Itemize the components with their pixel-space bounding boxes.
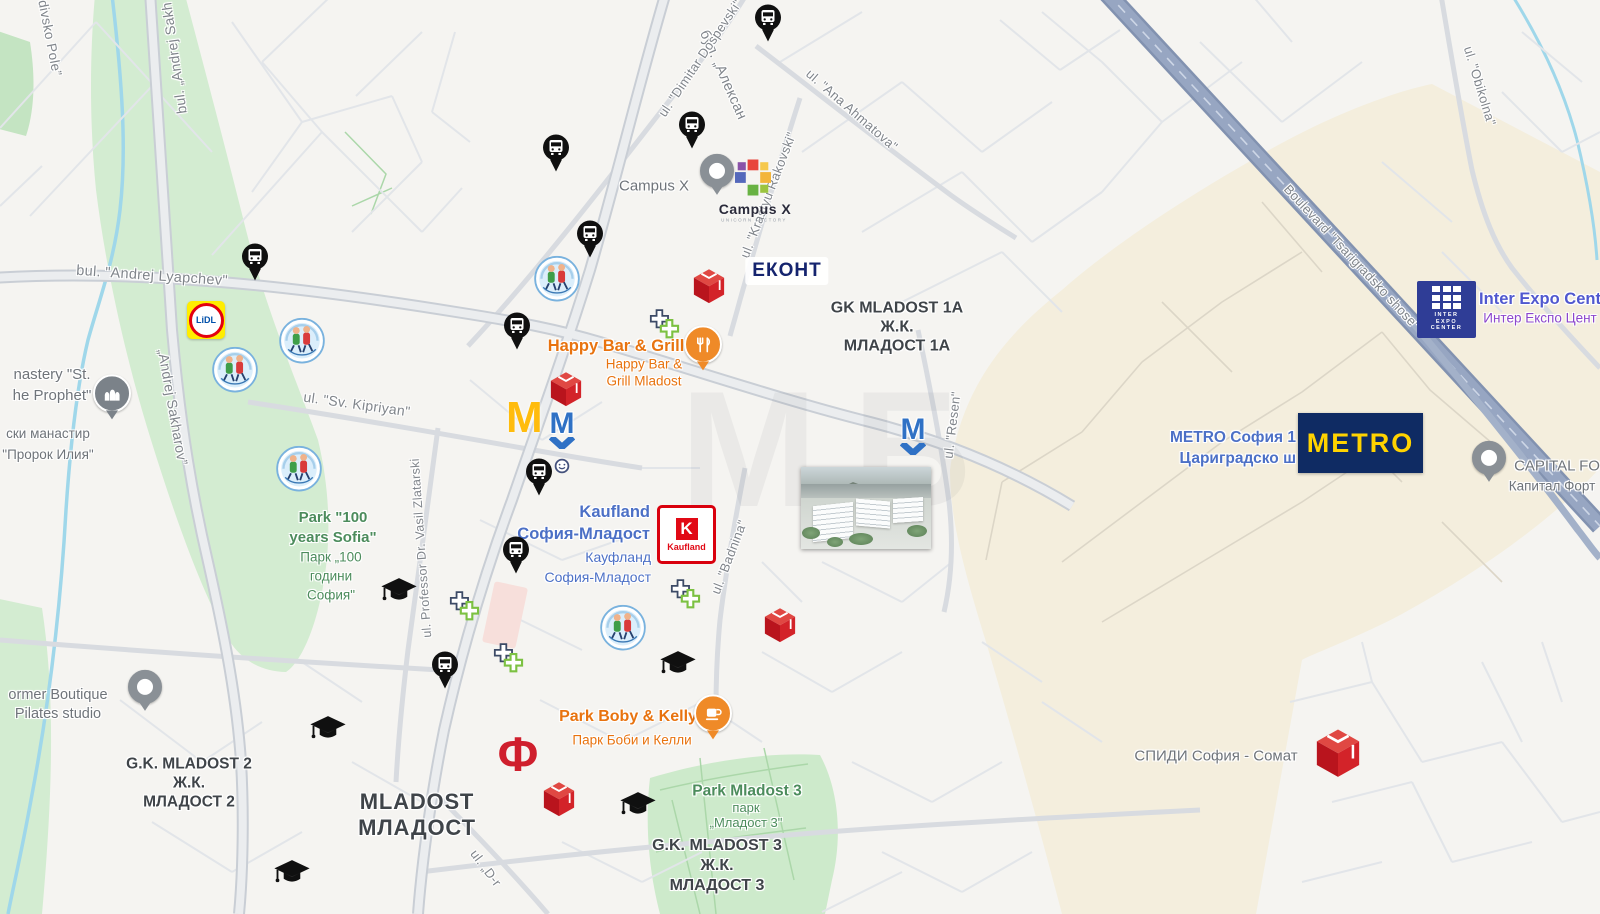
photo-trees: [907, 525, 927, 537]
school-icon[interactable]: [659, 649, 697, 678]
lidl-logo[interactable]: LiDL: [187, 301, 225, 339]
bus-stop-icon[interactable]: [753, 4, 783, 43]
kaufland-k: K: [680, 519, 692, 539]
speedy-parcel-icon[interactable]: [764, 607, 796, 643]
campus-x-pin[interactable]: [700, 154, 734, 201]
speedy-parcel-icon[interactable]: [550, 371, 582, 407]
school-icon[interactable]: [619, 790, 657, 819]
property-photo[interactable]: [801, 467, 931, 549]
monastery-en-label[interactable]: nastery "St.he Prophet": [13, 364, 92, 406]
metro-store-logo[interactable]: METRO: [1298, 413, 1423, 473]
pharmacy-cross-icon[interactable]: [449, 590, 483, 624]
kindergarten-icon[interactable]: [600, 605, 646, 651]
pharmacy-cross-icon[interactable]: [493, 642, 527, 676]
map-canvas[interactable]: МБ divsko Pole”bul. „Andrej Sakh„Andrej …: [0, 0, 1600, 914]
park-100-bg-label[interactable]: Парк „100годиниСофия": [300, 548, 361, 605]
fantastico-f: Ф: [498, 729, 539, 782]
monastery-bg-label[interactable]: ски манастир"Пророк Илия": [2, 423, 93, 465]
campus-x-icon: [735, 160, 771, 196]
sofia-metro-logo[interactable]: М: [900, 417, 926, 455]
pharmacy-cross-icon[interactable]: [670, 578, 704, 612]
pilates-studio-pin[interactable]: [128, 670, 162, 717]
campus-x-logo[interactable]: [735, 160, 771, 201]
school-icon[interactable]: [380, 576, 418, 605]
kindergarten-icon[interactable]: [279, 318, 325, 364]
pin-circle: [700, 154, 734, 188]
park-boby-kelly-pin[interactable]: [694, 694, 732, 745]
mcdonalds-m: M: [506, 393, 543, 442]
speedy-parcel-icon[interactable]: [1316, 728, 1361, 778]
bus-stop-icon[interactable]: [502, 312, 532, 351]
fantastico-logo[interactable]: Ф: [498, 728, 539, 783]
bus-stop-icon[interactable]: [524, 458, 554, 497]
gk-mladost-1a-label: GK MLADOST 1AЖ.К.МЛАДОСТ 1А: [831, 299, 963, 356]
gk-mladost-3-label: G.K. MLADOST 3Ж.К.МЛАДОСТ 3: [652, 836, 782, 896]
inter-expo-bg-label[interactable]: Интер Експо Цент: [1483, 311, 1596, 326]
kindergarten-icon[interactable]: [276, 446, 322, 492]
bus-stop-icon[interactable]: [430, 651, 460, 690]
school-icon[interactable]: [309, 714, 347, 743]
park-mladost3-bg-label[interactable]: парк„Младост 3": [710, 800, 783, 830]
photo-building: [856, 499, 890, 529]
school-icon[interactable]: [273, 858, 311, 887]
campus-x-title: Campus X: [719, 201, 791, 217]
photo-building: [893, 497, 923, 523]
speedy-parcel-icon[interactable]: [693, 268, 725, 304]
photo-trees: [827, 537, 843, 547]
kaufland-en-label[interactable]: KauflandСофия-Младост: [517, 501, 650, 545]
bus-stop-icon[interactable]: [541, 134, 571, 173]
gk-mladost-2-label: G.K. MLADOST 2Ж.К.МЛАДОСТ 2: [126, 755, 252, 812]
mladost-big-label: MLADOSTМЛАДОСТ: [358, 789, 476, 841]
mcdonalds-logo[interactable]: M: [506, 398, 543, 438]
happy-bg-label[interactable]: Happy Bar &Grill Mladost: [606, 357, 683, 390]
park-100-en-label[interactable]: Park "100years Sofia": [289, 508, 376, 548]
monastery-pin[interactable]: [93, 374, 131, 425]
metro-chevron-icon: [549, 437, 575, 449]
metro-store-text: METRO: [1307, 428, 1415, 459]
kaufland-logo[interactable]: K Kaufland: [657, 505, 716, 564]
photo-trees: [849, 533, 873, 545]
boby-bg-label[interactable]: Парк Боби и Келли: [572, 733, 691, 748]
campus-x-tagline: UNICORN FACTORY: [721, 218, 787, 223]
smiley-poi-icon[interactable]: [554, 458, 570, 474]
sofia-metro-logo[interactable]: М: [549, 411, 575, 449]
lidl-text: LiDL: [196, 315, 216, 325]
inter-expo-grid-icon: [1432, 286, 1461, 309]
econt-logo[interactable]: ЕКОНТ: [745, 257, 828, 285]
pharmacy-cross-icon[interactable]: [649, 308, 683, 342]
bus-stop-icon[interactable]: [575, 220, 605, 259]
capital-fort-en-label[interactable]: CAPITAL FO: [1514, 458, 1600, 475]
kaufland-bg-label[interactable]: КауфландСофия-Младост: [545, 547, 651, 587]
kindergarten-icon[interactable]: [212, 347, 258, 393]
capital-fort-pin[interactable]: [1472, 441, 1506, 488]
campus-x-map-label[interactable]: Campus X: [619, 178, 689, 195]
pin-circle: [1472, 441, 1506, 475]
happy-bar-grill-pin[interactable]: [684, 325, 722, 376]
inter-expo-en-label[interactable]: Inter Expo Cent: [1479, 290, 1600, 308]
metro-sofia-label[interactable]: METRO София 1Цариградско ш: [1170, 427, 1296, 469]
inter-expo-center-logo[interactable]: INTER EXPO CENTER: [1417, 281, 1476, 338]
kaufland-text: Kaufland: [667, 542, 706, 552]
bus-stop-icon[interactable]: [240, 243, 270, 282]
park-mladost3-en-label[interactable]: Park Mladost 3: [692, 783, 801, 800]
former-boutique-label[interactable]: ormer BoutiquePilates studio: [8, 686, 107, 724]
restaurant-icon: [694, 335, 713, 354]
kindergarten-icon[interactable]: [534, 256, 580, 302]
capital-fort-bg-label[interactable]: Капитал Форт: [1509, 479, 1596, 494]
bus-stop-icon[interactable]: [677, 111, 707, 150]
cafe-icon: [704, 705, 723, 722]
speedy-parcel-icon[interactable]: [543, 781, 575, 817]
spidi-label[interactable]: СПИДИ София - Сомат: [1134, 748, 1297, 765]
pin-circle: [128, 670, 162, 704]
photo-trees: [802, 527, 820, 539]
metro-chevron-icon: [900, 443, 926, 455]
econt-text: ЕКОНТ: [752, 260, 821, 281]
monastery-icon: [102, 384, 122, 402]
boby-en-label[interactable]: Park Boby & Kelly: [559, 708, 697, 726]
bus-stop-icon[interactable]: [501, 536, 531, 575]
